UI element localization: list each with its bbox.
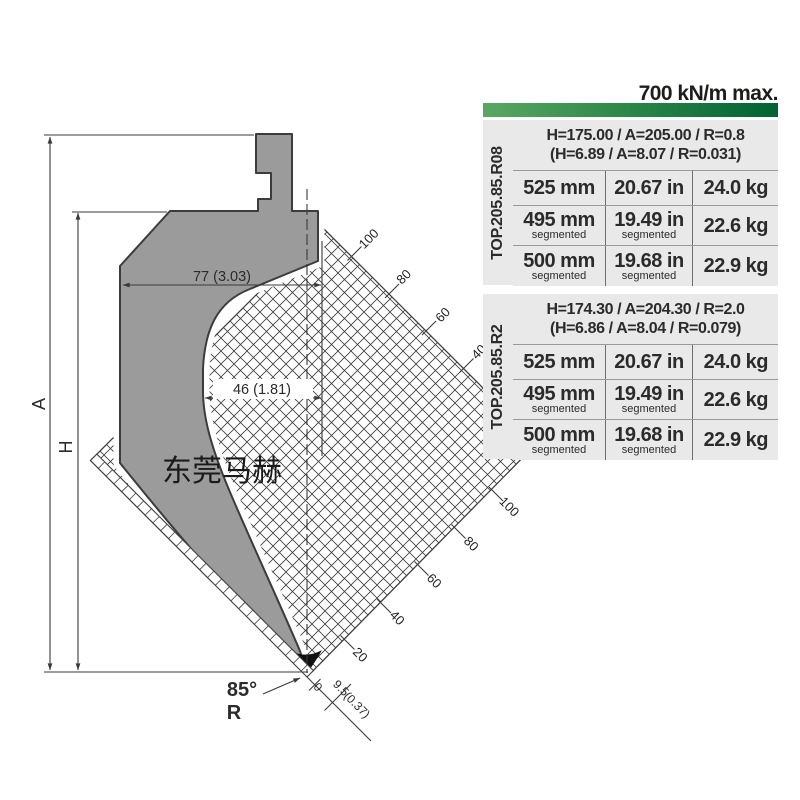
weight-cell: 24.0 kg	[692, 171, 778, 205]
segmented-note: segmented	[532, 404, 586, 415]
weight-cell: 22.9 kg	[692, 420, 778, 460]
length-in-cell: 19.49 insegmented	[605, 206, 692, 245]
dim-h-label: H	[56, 441, 76, 454]
table-row: 495 mmsegmented 19.49 insegmented 22.6 k…	[513, 205, 778, 245]
header-imperial: (H=6.86 / A=8.04 / R=0.079)	[513, 319, 778, 338]
table-row: 500 mmsegmented 19.68 insegmented 22.9 k…	[513, 419, 778, 460]
weight-cell: 22.6 kg	[692, 380, 778, 419]
radius-label: R	[227, 702, 242, 724]
weight-cell: 24.0 kg	[692, 345, 778, 379]
header-metric: H=175.00 / A=205.00 / R=0.8	[513, 126, 778, 145]
punch-catalog-page: 100 80 60 40 100 80 60 40 20	[0, 0, 800, 800]
spec-section-r2: TOP.205.85.R2 H=174.30 / A=204.30 / R=2.…	[483, 294, 778, 459]
length-mm-cell: 525 mm	[513, 171, 605, 205]
dim-46-label: 46 (1.81)	[233, 382, 291, 398]
length-mm-cell: 495 mmsegmented	[513, 206, 605, 245]
angle-label: 85°	[227, 679, 257, 701]
segmented-note: segmented	[622, 271, 676, 282]
section-header: H=174.30 / A=204.30 / R=2.0 (H=6.86 / A=…	[513, 294, 778, 344]
length-mm-cell: 495 mmsegmented	[513, 380, 605, 419]
section-header: H=175.00 / A=205.00 / R=0.8 (H=6.89 / A=…	[513, 120, 778, 170]
model-label: TOP.205.85.R08	[489, 146, 507, 260]
ruler-label: 40	[387, 607, 408, 628]
segmented-note: segmented	[532, 230, 586, 241]
table-row: 500 mmsegmented 19.68 insegmented 22.9 k…	[513, 245, 778, 286]
segmented-note: segmented	[532, 445, 586, 456]
tip-zero-label: 0	[311, 680, 326, 695]
segmented-note: segmented	[622, 230, 676, 241]
header-metric: H=174.30 / A=204.30 / R=2.0	[513, 300, 778, 319]
dim-a-label: A	[29, 398, 49, 410]
table-row: 525 mm 20.67 in 24.0 kg	[513, 170, 778, 205]
weight-cell: 22.9 kg	[692, 246, 778, 286]
spec-section-r08: TOP.205.85.R08 H=175.00 / A=205.00 / R=0…	[483, 120, 778, 285]
segmented-note: segmented	[622, 404, 676, 415]
length-mm-cell: 500 mmsegmented	[513, 246, 605, 286]
segmented-note: segmented	[532, 271, 586, 282]
table-row: 495 mmsegmented 19.49 insegmented 22.6 k…	[513, 379, 778, 419]
accent-bar	[483, 103, 778, 117]
length-in-cell: 19.68 insegmented	[605, 246, 692, 286]
dim-77-label: 77 (3.03)	[193, 269, 251, 285]
model-column: TOP.205.85.R08	[483, 120, 515, 285]
header-imperial: (H=6.89 / A=8.07 / R=0.031)	[513, 145, 778, 164]
length-mm-cell: 525 mm	[513, 345, 605, 379]
model-column: TOP.205.85.R2	[483, 294, 515, 459]
segmented-note: segmented	[622, 445, 676, 456]
length-in-cell: 20.67 in	[605, 345, 692, 379]
model-label: TOP.205.85.R2	[489, 324, 507, 429]
length-in-cell: 20.67 in	[605, 171, 692, 205]
length-mm-cell: 500 mmsegmented	[513, 420, 605, 460]
length-in-cell: 19.49 insegmented	[605, 380, 692, 419]
weight-cell: 22.6 kg	[692, 206, 778, 245]
angle-leader	[263, 678, 300, 694]
length-in-cell: 19.68 insegmented	[605, 420, 692, 460]
table-row: 525 mm 20.67 in 24.0 kg	[513, 344, 778, 379]
ruler-label: 80	[393, 266, 414, 287]
watermark-text: 东莞马赫	[162, 455, 282, 488]
